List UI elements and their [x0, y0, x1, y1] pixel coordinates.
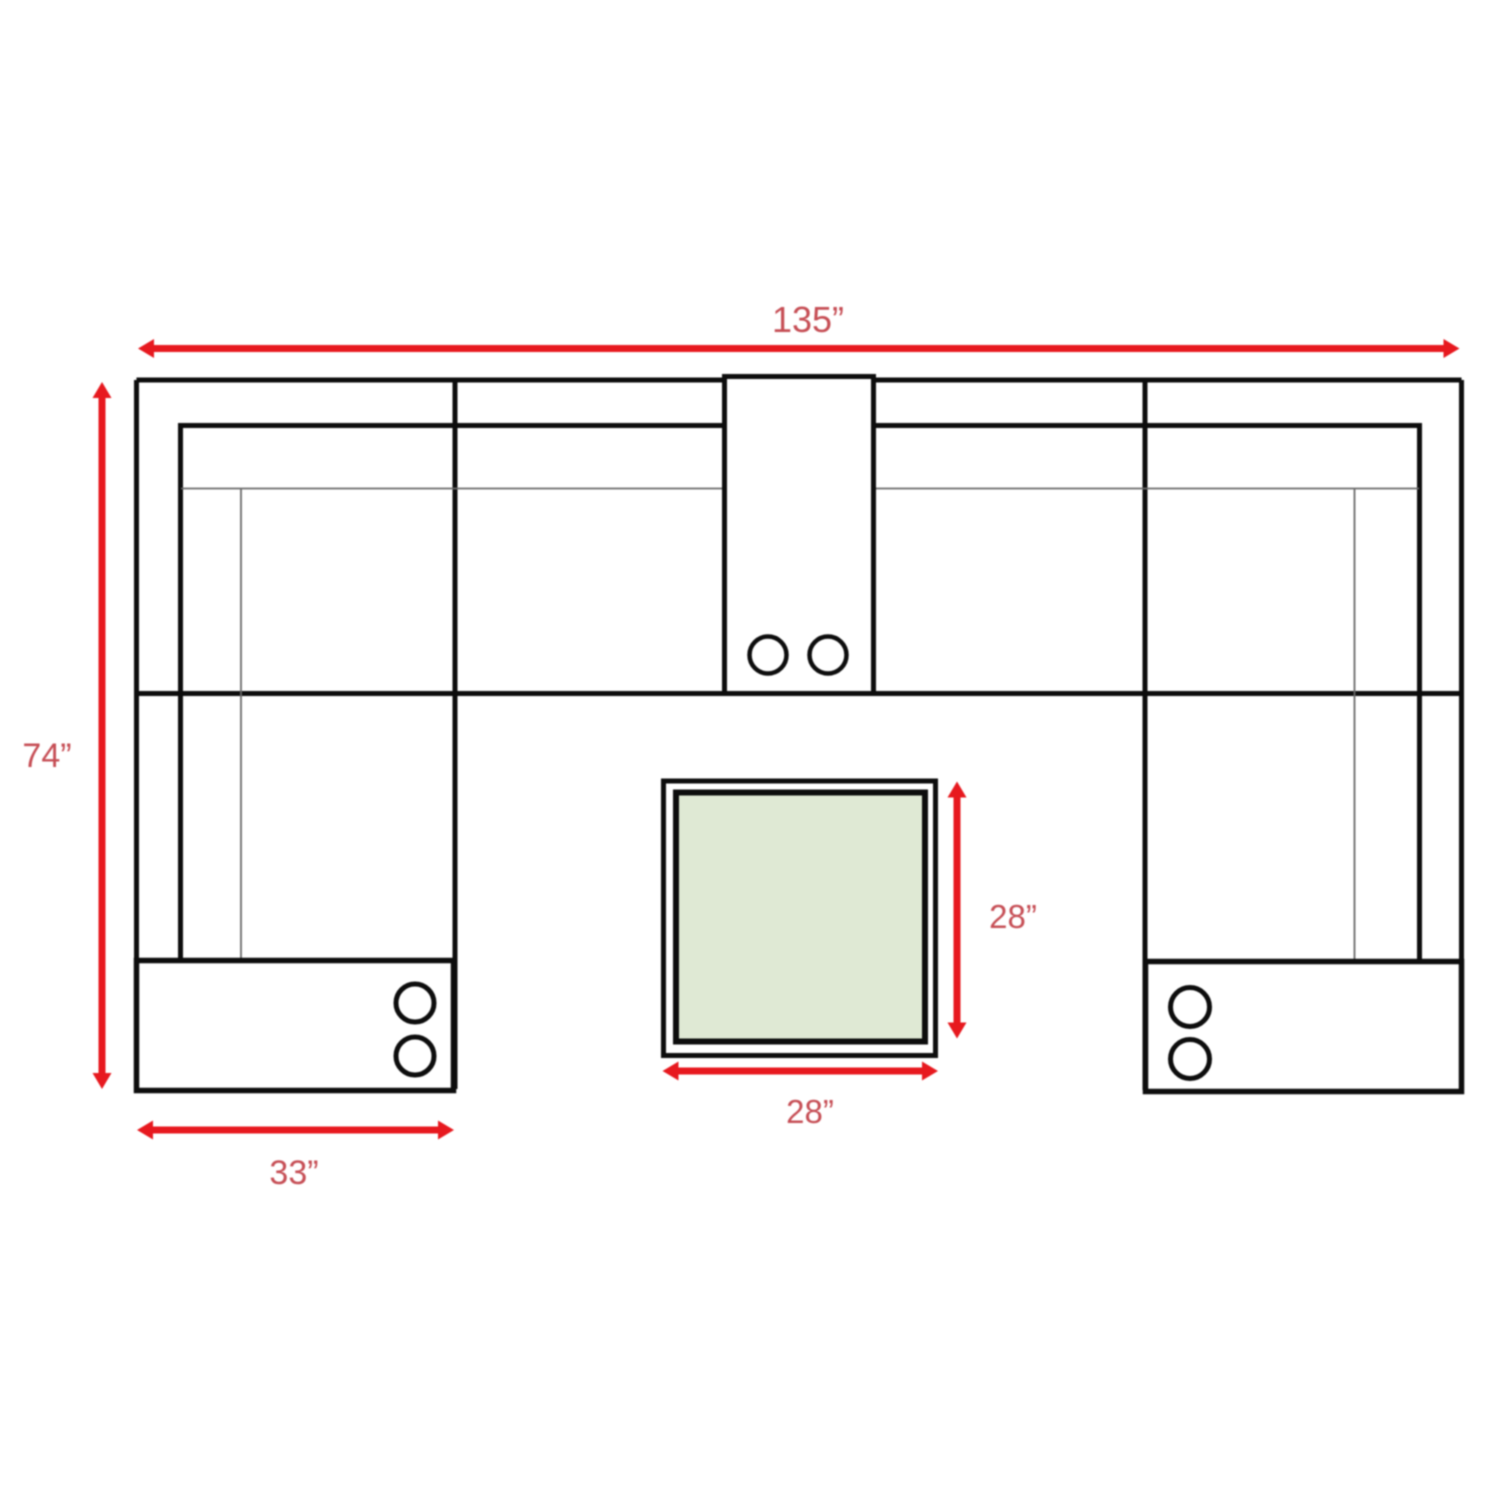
svg-text:33”: 33” — [269, 1154, 318, 1192]
svg-text:28”: 28” — [989, 898, 1037, 935]
svg-text:74”: 74” — [22, 737, 71, 775]
svg-text:28”: 28” — [786, 1093, 834, 1130]
svg-text:135”: 135” — [772, 299, 844, 340]
